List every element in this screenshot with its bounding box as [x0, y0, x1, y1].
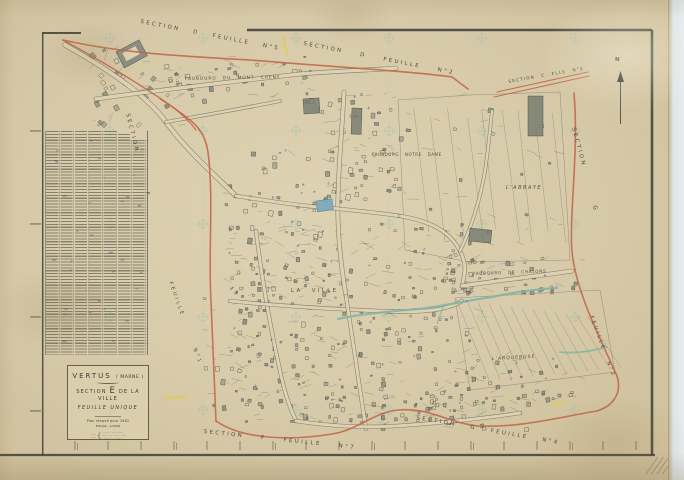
parcel-index-table	[45, 131, 148, 355]
title-scale-line: Echelle : 1/1000	[68, 424, 148, 428]
scanner-edge-strip	[668, 0, 684, 480]
title-section-word: SECTION	[76, 389, 106, 395]
place-label-abbaye: L'ABBAYE	[506, 185, 542, 191]
micro-right-3: · ——— ·· ···· ——	[102, 437, 126, 440]
title-underline-flourish	[97, 381, 119, 384]
micro-brace: {	[97, 432, 101, 440]
title-divider-rule	[95, 416, 121, 417]
title-commune: VERTUS ( MARNE )	[68, 372, 148, 380]
title-commune-dept: ( MARNE )	[116, 375, 144, 380]
title-section-letter: E	[109, 386, 116, 396]
title-feuille-line: FEUILLE UNIQUE	[68, 406, 148, 411]
title-micro-legend: —·— ··—— { ··— — ·· —— ——— · —— ·· — ···…	[68, 431, 148, 440]
title-commune-name: VERTUS	[72, 372, 111, 380]
place-label-faubourg-notre-dame: FAUBOURG NOTRE DAME	[372, 152, 442, 157]
place-label-la-ville: LA VILLE	[291, 288, 338, 294]
title-block: VERTUS ( MARNE ) SECTION E DE LA VILLE F…	[67, 365, 149, 440]
micro-left-2: ··——	[90, 436, 96, 439]
title-section-line: SECTION E DE LA VILLE	[68, 386, 148, 402]
title-revision-line: Plan rénové pour 1962	[68, 419, 148, 423]
micro-legend-left: —·— ··——	[90, 433, 96, 439]
cadastral-map-sheet: SECTION D FEUILLE N°5 SECTION D FEUILLE …	[0, 0, 684, 480]
micro-legend-right: ··— — ·· —— ——— · —— ·· — ··· —— · —— · …	[102, 431, 126, 440]
north-arrow-label: N	[615, 57, 620, 63]
